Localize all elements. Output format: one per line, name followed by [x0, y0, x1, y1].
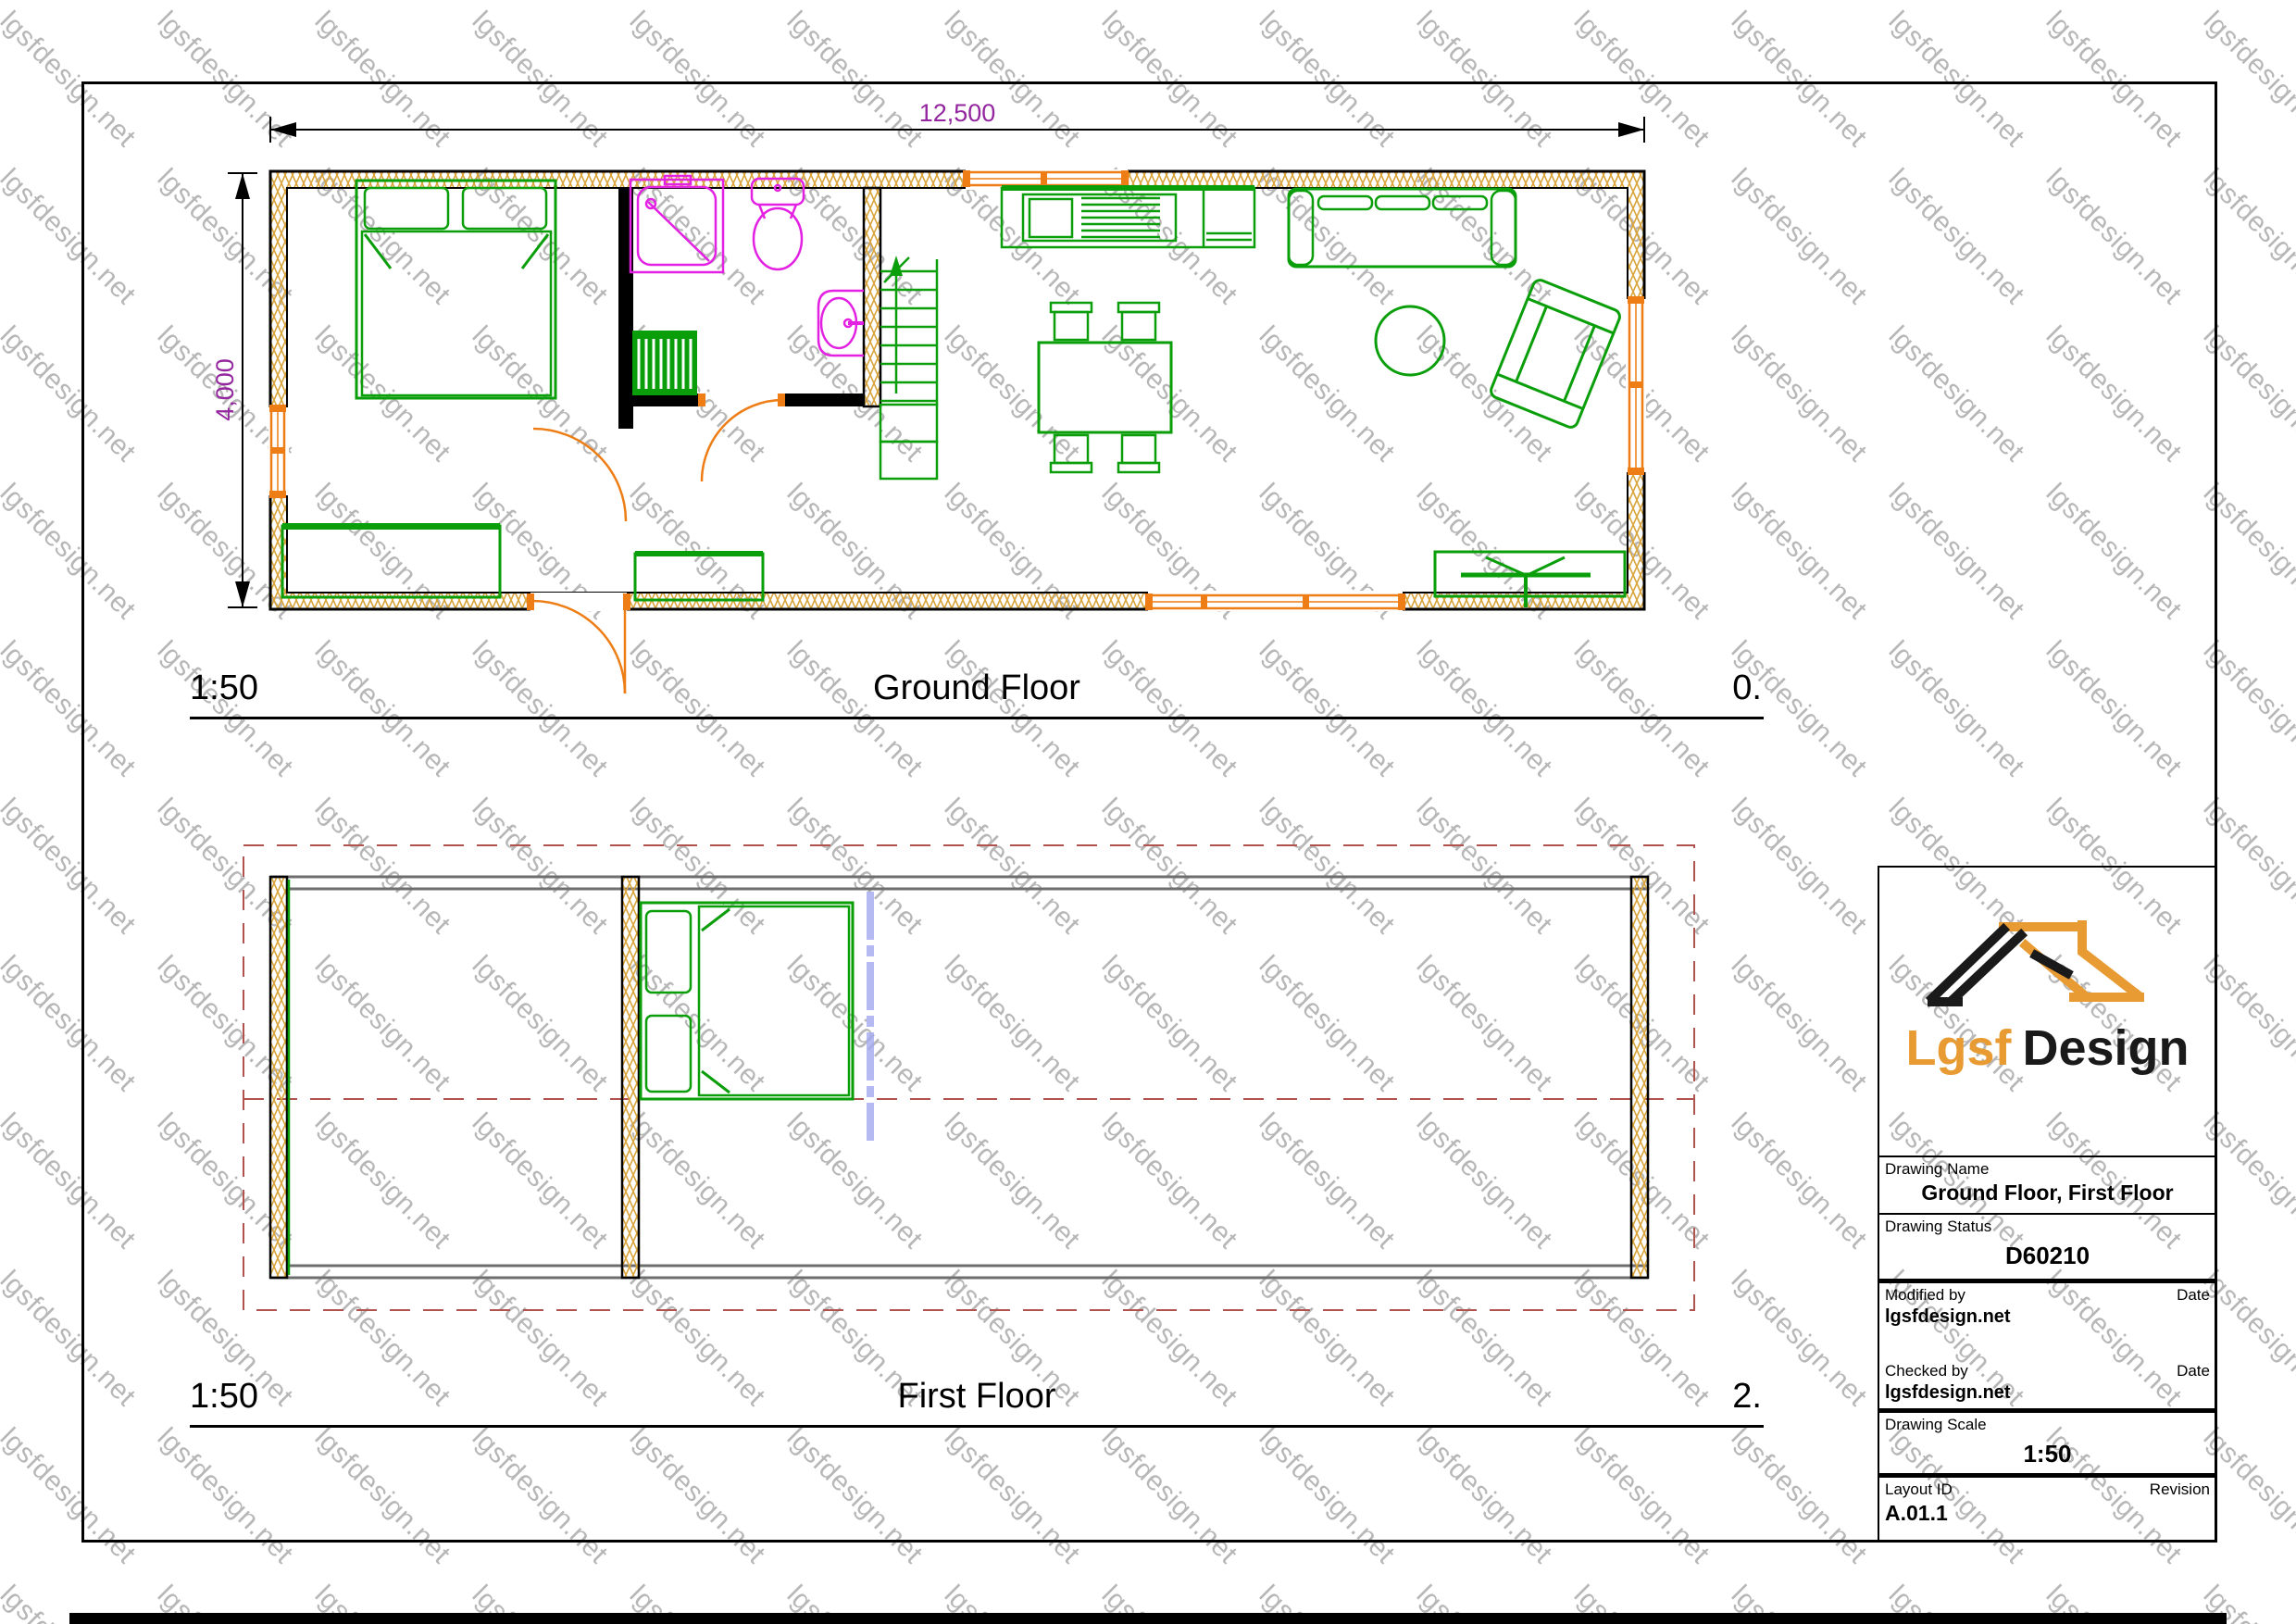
- logo-word-lgsf: Lgsf: [1905, 1020, 2011, 1076]
- date-label: Date: [2177, 1362, 2210, 1380]
- date-label: Date: [2177, 1286, 2210, 1305]
- first-floor-number: 2.: [1732, 1377, 1762, 1417]
- first-floor-left-wall: [270, 877, 289, 1278]
- first-floor-walls: [270, 877, 1648, 1278]
- wall-bathroom-bottom-left: [633, 394, 702, 406]
- field-modified-by: Modified by Date lgsfdesign.net: [1879, 1279, 2215, 1359]
- first-floor-bed: [641, 903, 853, 1099]
- kitchen-counter: [1002, 185, 1254, 247]
- field-checked-by: Checked by Date lgsfdesign.net: [1879, 1359, 2215, 1408]
- double-bed: [356, 181, 555, 398]
- dimension-height-label: 4,000: [211, 358, 239, 421]
- wall-bathroom-bottom-right: [783, 394, 864, 406]
- toilet: [752, 179, 804, 269]
- first-floor-mid-wall: [622, 877, 639, 1278]
- ground-floor-title: Ground Floor: [190, 668, 1764, 708]
- wash-basin: [818, 291, 864, 356]
- caption-underline: [190, 717, 1764, 719]
- hob-lines: [1081, 198, 1160, 237]
- logo-wordmark: LgsfDesign: [1879, 1019, 2215, 1077]
- shower-tray: [630, 176, 723, 272]
- bedroom-door: [533, 429, 626, 521]
- title-block: LgsfDesign Drawing Name Ground Floor, Fi…: [1878, 866, 2217, 1543]
- first-floor-title: First Floor: [190, 1377, 1764, 1417]
- ground-floor-number: 0.: [1732, 668, 1762, 708]
- drawing-sheet: lgsfdesign.netlgsfdesign.netlgsfdesign.n…: [0, 0, 2296, 1624]
- roof-logo-icon: [1890, 910, 2205, 1014]
- coffee-table: [1376, 306, 1444, 375]
- radiator: [632, 331, 697, 395]
- window-bottom-living: [1145, 591, 1405, 611]
- dining-chair: [1118, 303, 1159, 340]
- field-drawing-name: Drawing Name Ground Floor, First Floor: [1879, 1156, 2215, 1213]
- first-floor-plan: [243, 845, 1694, 1310]
- bathroom-door: [698, 394, 785, 481]
- roof-outline: [243, 845, 1694, 1310]
- wardrobe: [282, 523, 500, 597]
- bottom-bar: [69, 1613, 2227, 1624]
- sofa: [1289, 189, 1516, 267]
- dining-set: [1039, 303, 1171, 472]
- caption-underline: [190, 1425, 1764, 1428]
- dining-chair: [1051, 303, 1092, 340]
- dining-chair: [1051, 435, 1092, 472]
- company-logo: LgsfDesign: [1879, 868, 2215, 1156]
- first-floor-caption: 1:50 First Floor 2.: [190, 1377, 1764, 1428]
- ground-floor-caption: 1:50 Ground Floor 0.: [190, 668, 1764, 719]
- dimension-width-label: 12,500: [919, 99, 996, 127]
- field-drawing-scale: Drawing Scale 1:50: [1879, 1408, 2215, 1473]
- dining-table: [1039, 343, 1171, 432]
- first-floor-right-wall: [1631, 877, 1648, 1278]
- armchair: [1489, 278, 1622, 430]
- window-left-bedroom: [268, 405, 289, 498]
- field-drawing-status: Drawing Status D60210: [1879, 1213, 2215, 1279]
- staircase: [880, 256, 937, 479]
- window-right-living: [1626, 296, 1646, 475]
- wall-bathroom-right: [864, 188, 880, 406]
- revision-label: Revision: [2150, 1480, 2210, 1499]
- kitchen-sink: [1029, 199, 1072, 237]
- logo-word-design: Design: [2022, 1020, 2189, 1076]
- ground-floor-plan: 12,500 4,000: [211, 99, 1646, 693]
- dining-chair: [1118, 435, 1159, 472]
- field-layout-id: Layout ID Revision A.01.1: [1879, 1473, 2215, 1541]
